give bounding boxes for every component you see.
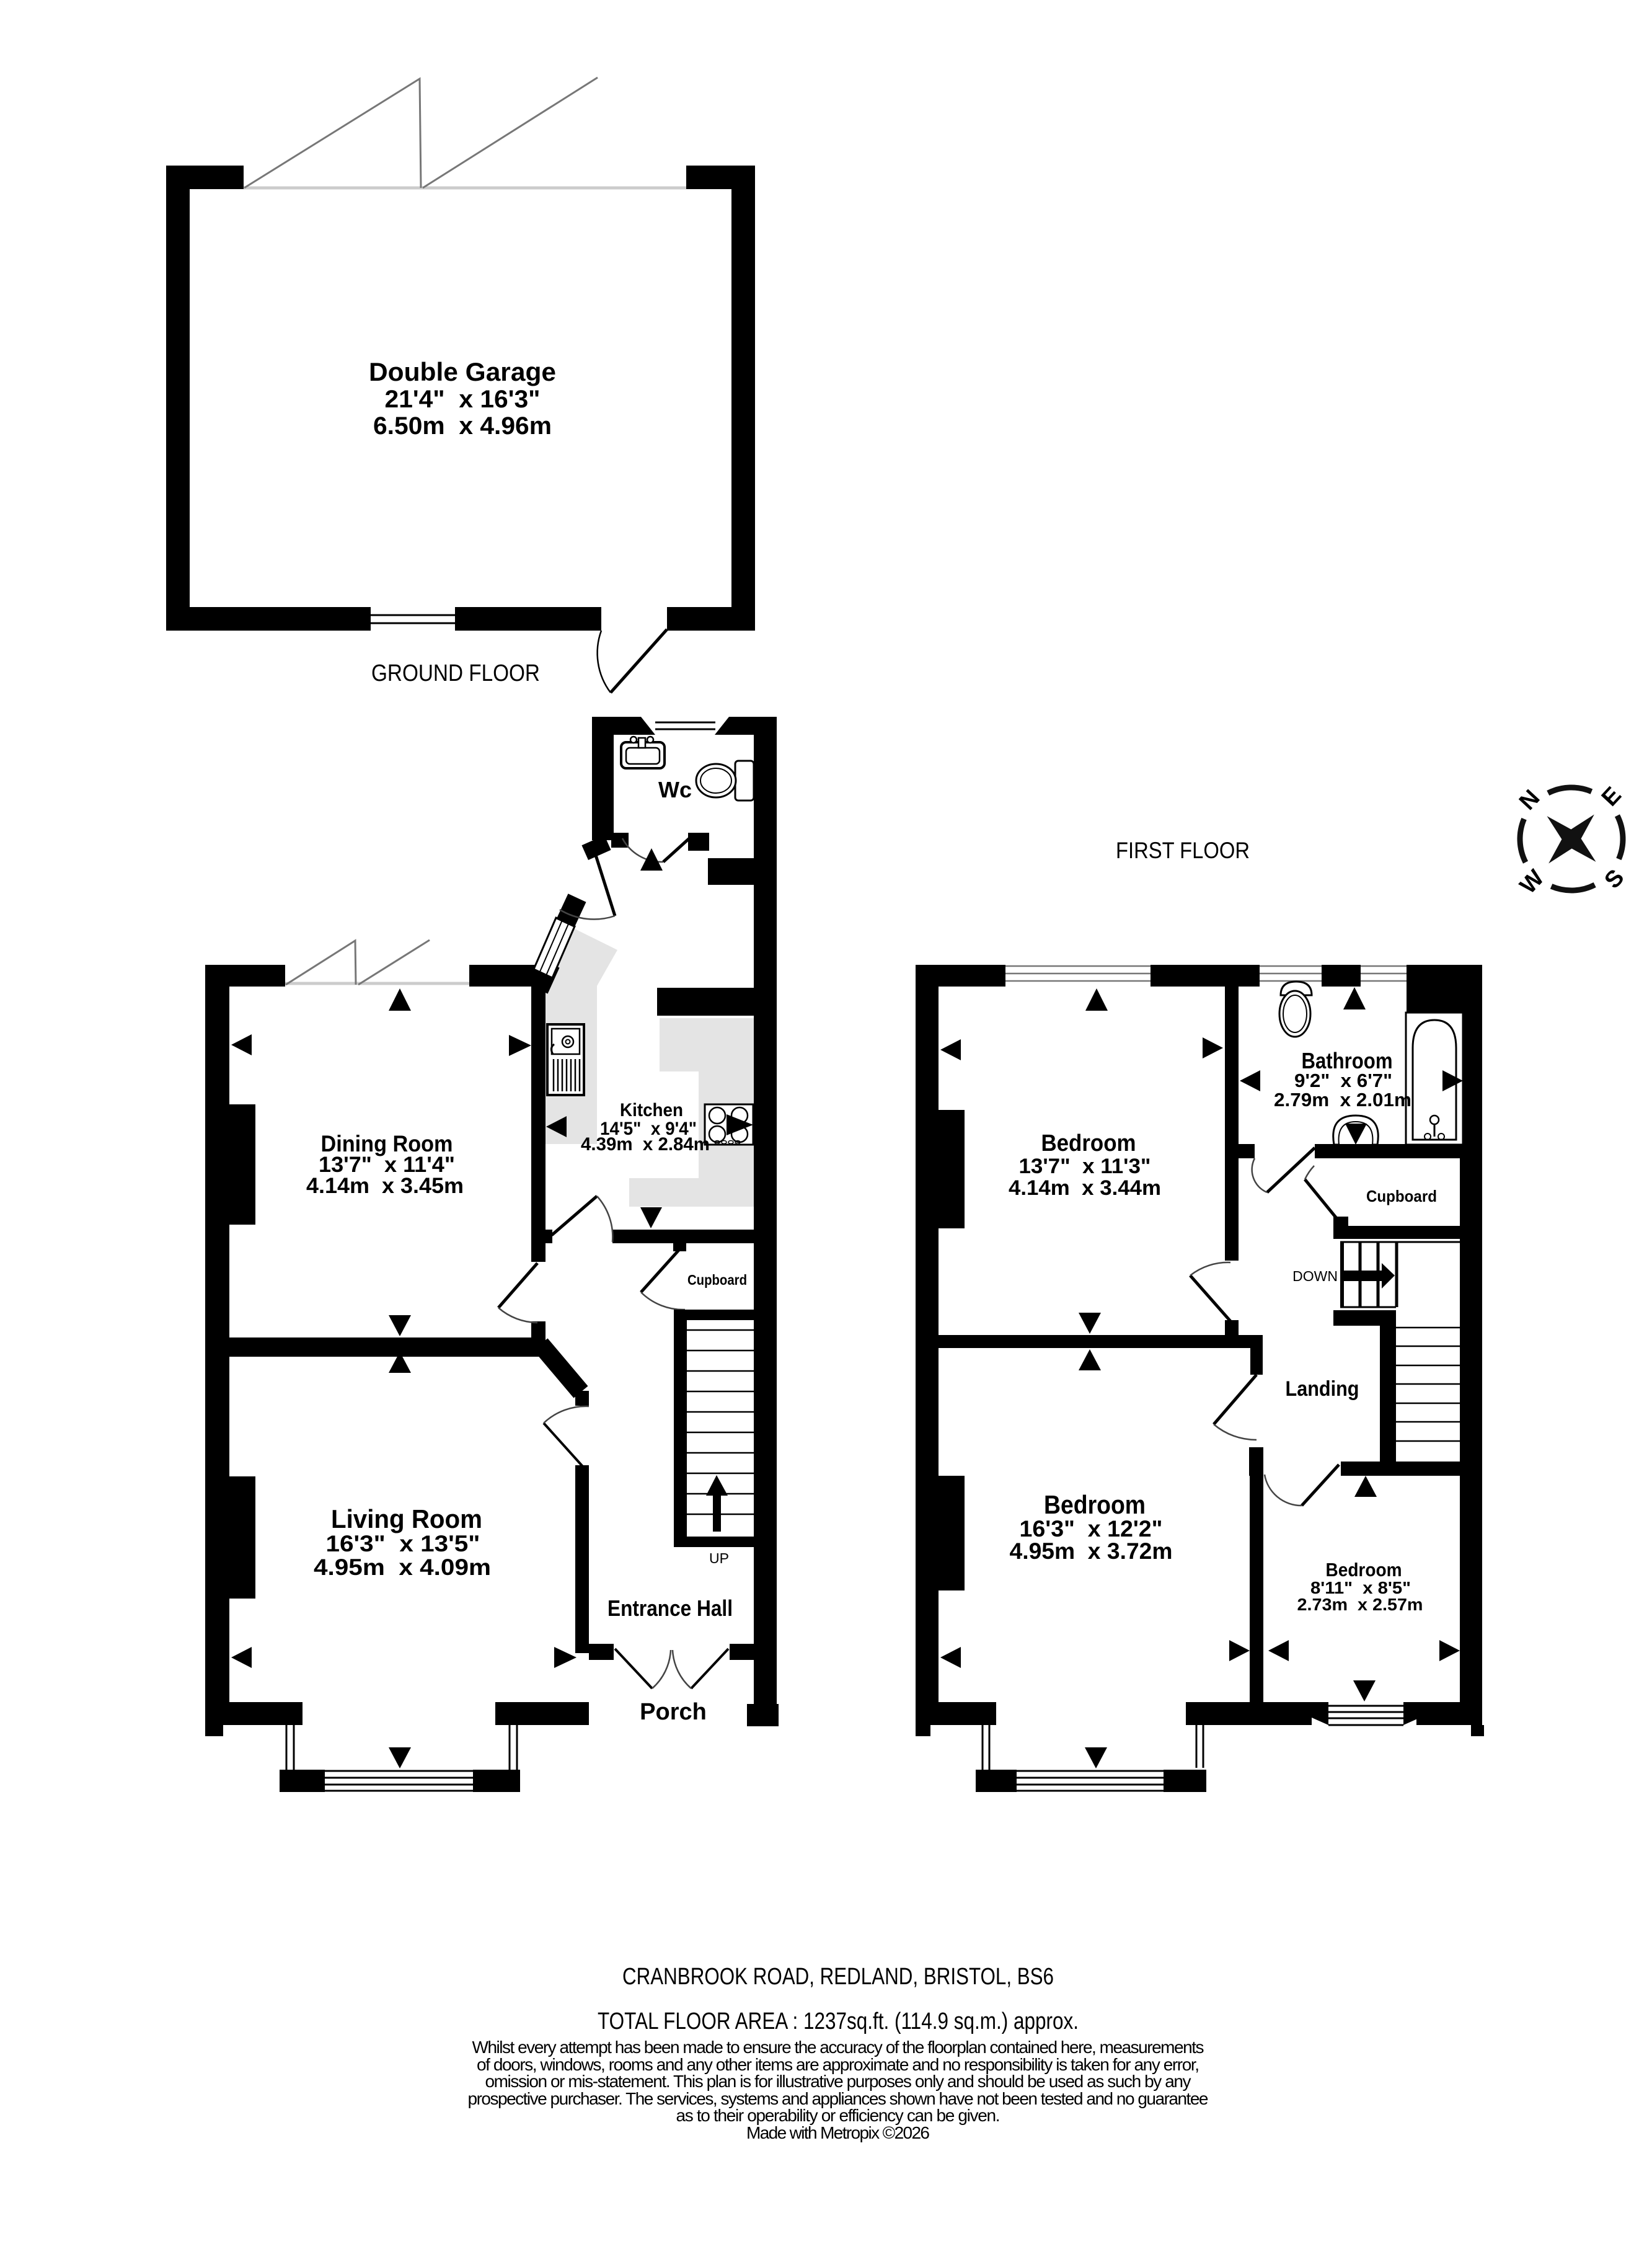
svg-text:omission or mis-statement. Thi: omission or mis-statement. This plan is … (485, 2072, 1191, 2091)
svg-text:Entrance Hall: Entrance Hall (607, 1595, 733, 1621)
svg-text:Living Room: Living Room (331, 1504, 482, 1533)
svg-text:4.14m x 3.45m: 4.14m x 3.45m (306, 1174, 464, 1198)
svg-text:Cupboard: Cupboard (687, 1272, 747, 1288)
svg-text:4.14m x 3.44m: 4.14m x 3.44m (1009, 1176, 1161, 1200)
svg-text:Double Garage: Double Garage (369, 357, 556, 386)
svg-text:FIRST FLOOR: FIRST FLOOR (1116, 838, 1250, 863)
svg-text:2.79m x 2.01m: 2.79m x 2.01m (1274, 1089, 1411, 1111)
svg-text:CRANBROOK ROAD, REDLAND, BRIST: CRANBROOK ROAD, REDLAND, BRISTOL, BS6 (622, 1964, 1054, 1990)
svg-text:Wc: Wc (658, 777, 692, 802)
svg-text:6.50m x 4.96m: 6.50m x 4.96m (373, 412, 552, 440)
svg-text:4.95m x 3.72m: 4.95m x 3.72m (1010, 1538, 1173, 1564)
svg-text:Bedroom: Bedroom (1044, 1490, 1146, 1519)
svg-text:4.39m x 2.84m: 4.39m x 2.84m (581, 1134, 710, 1155)
svg-text:2.73m x 2.57m: 2.73m x 2.57m (1297, 1595, 1423, 1614)
svg-text:as to their operability or eff: as to their operability or efficiency ca… (676, 2106, 1000, 2125)
svg-text:Made with Metropix ©2026: Made with Metropix ©2026 (746, 2123, 930, 2142)
svg-text:TOTAL FLOOR AREA : 1237sq.ft.: TOTAL FLOOR AREA : 1237sq.ft. (114.9 sq.… (598, 2008, 1079, 2034)
svg-text:21'4" x 16'3": 21'4" x 16'3" (385, 386, 541, 413)
svg-text:4.95m x 4.09m: 4.95m x 4.09m (314, 1555, 491, 1580)
svg-text:Landing: Landing (1286, 1377, 1359, 1401)
svg-text:GROUND FLOOR: GROUND FLOOR (371, 660, 540, 686)
svg-text:DOWN: DOWN (1292, 1268, 1338, 1284)
svg-text:Porch: Porch (640, 1699, 707, 1725)
svg-text:13'7" x 11'3": 13'7" x 11'3" (1019, 1155, 1151, 1178)
svg-text:Whilst every attempt has been: Whilst every attempt has been made to en… (472, 2038, 1204, 2057)
svg-text:Cupboard: Cupboard (1366, 1187, 1437, 1205)
svg-text:9'2" x 6'7": 9'2" x 6'7" (1294, 1070, 1392, 1091)
svg-text:16'3" x 12'2": 16'3" x 12'2" (1020, 1516, 1163, 1541)
svg-text:Kitchen: Kitchen (620, 1100, 683, 1120)
svg-text:Bedroom: Bedroom (1041, 1130, 1136, 1156)
svg-text:UP: UP (709, 1550, 729, 1566)
svg-text:16'3" x 13'5": 16'3" x 13'5" (326, 1531, 480, 1556)
svg-text:Bedroom: Bedroom (1326, 1559, 1402, 1581)
